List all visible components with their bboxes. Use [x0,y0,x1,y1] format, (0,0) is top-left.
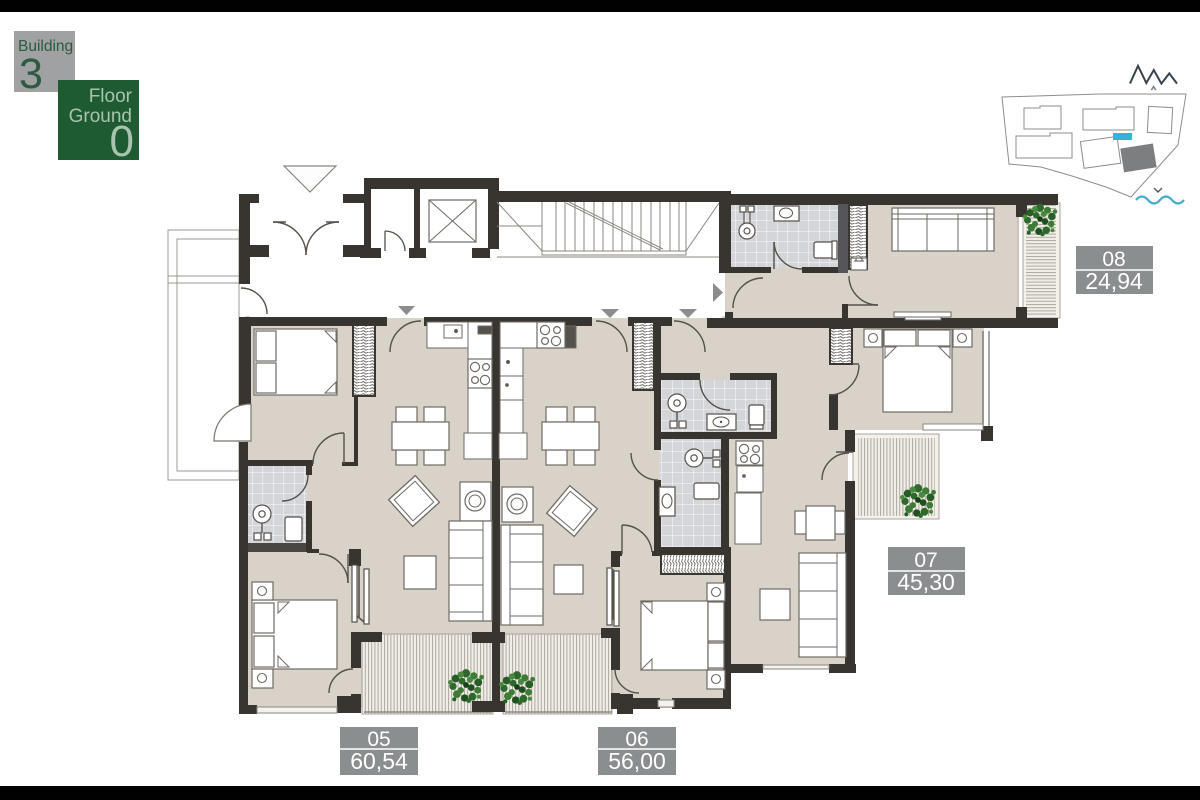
svg-text:0: 0 [110,117,134,166]
svg-text:3: 3 [19,50,43,98]
svg-text:45,30: 45,30 [897,569,955,595]
svg-text:24,94: 24,94 [1085,268,1143,294]
svg-text:Floor: Floor [89,86,133,107]
svg-text:56,00: 56,00 [608,748,666,774]
svg-text:60,54: 60,54 [350,748,408,774]
